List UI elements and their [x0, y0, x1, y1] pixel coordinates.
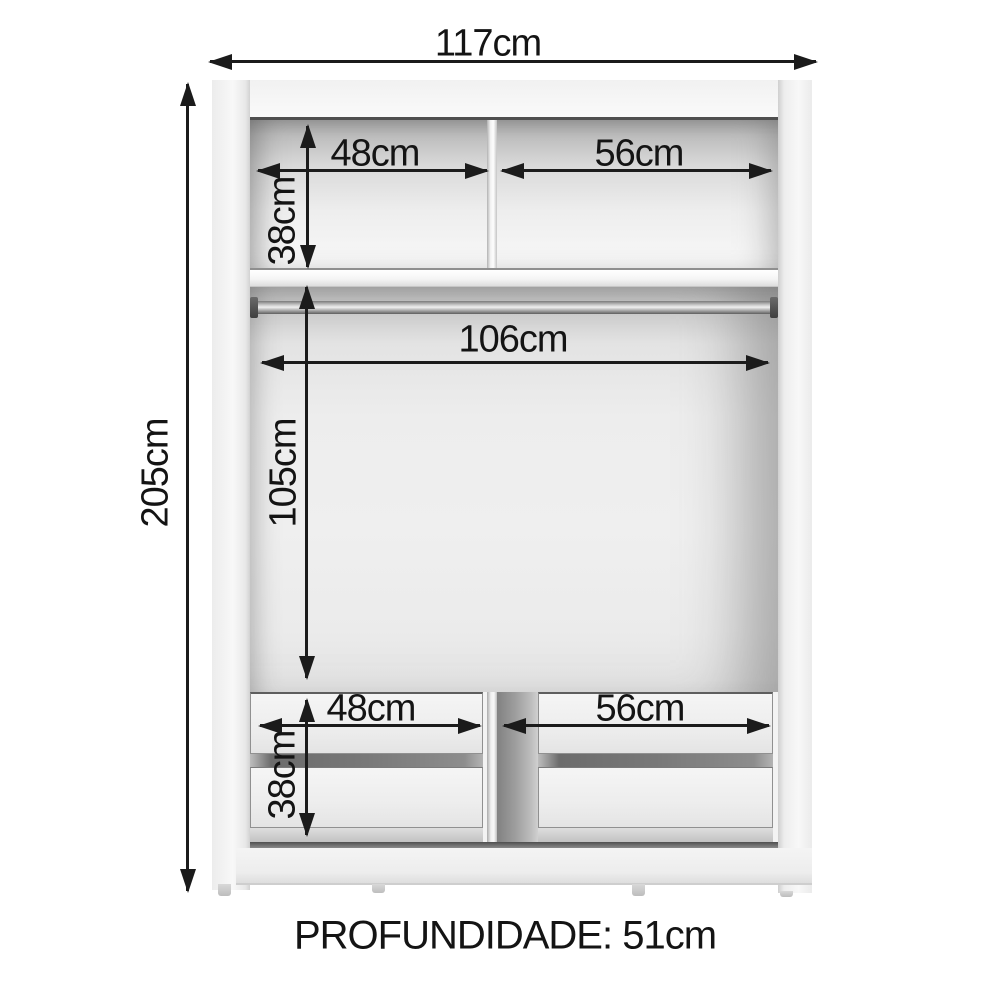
hanging-height-label: 105cm [263, 418, 306, 527]
wardrobe-right-side-panel [778, 80, 812, 893]
drawer-right-under-shadow [538, 828, 773, 842]
drawer-divider-recess [497, 692, 538, 842]
lower-right-width-label: 56cm [596, 688, 685, 731]
lower-height-arrow [305, 700, 308, 835]
upper-left-width-label: 48cm [331, 133, 420, 176]
foot-center-right [632, 884, 645, 896]
upper-compartment-divider [487, 120, 497, 268]
foot-left [218, 884, 231, 896]
overall-height-arrow [186, 84, 189, 891]
drawer-left-under-shadow [250, 828, 483, 842]
upper-height-label: 38cm [262, 177, 305, 266]
wardrobe-top-panel [212, 80, 812, 117]
drawer-right-gap [538, 754, 773, 767]
lower-height-label: 38cm [262, 731, 305, 820]
lower-left-width-label: 48cm [327, 688, 416, 731]
upper-height-arrow [306, 126, 309, 267]
dimension-diagram: 117cm 205cm 48cm 56cm 38cm 106cm 105cm 4… [0, 0, 1000, 1000]
foot-center-left [372, 884, 385, 893]
overall-height-label: 205cm [135, 418, 178, 527]
foot-right [780, 891, 793, 897]
wardrobe-left-side-panel [212, 80, 250, 890]
drawer-right-bottom [538, 767, 773, 828]
hanging-rod [252, 301, 776, 314]
hanging-width-label: 106cm [458, 319, 567, 362]
toe-kick-panel [236, 848, 812, 885]
drawer-divider-front [487, 692, 497, 842]
depth-note: PROFUNDIDADE: 51cm [294, 914, 716, 959]
upper-right-width-label: 56cm [595, 133, 684, 176]
fixed-shelf [250, 268, 778, 287]
overall-width-label: 117cm [435, 23, 541, 66]
upper-compartment-interior [250, 117, 778, 268]
